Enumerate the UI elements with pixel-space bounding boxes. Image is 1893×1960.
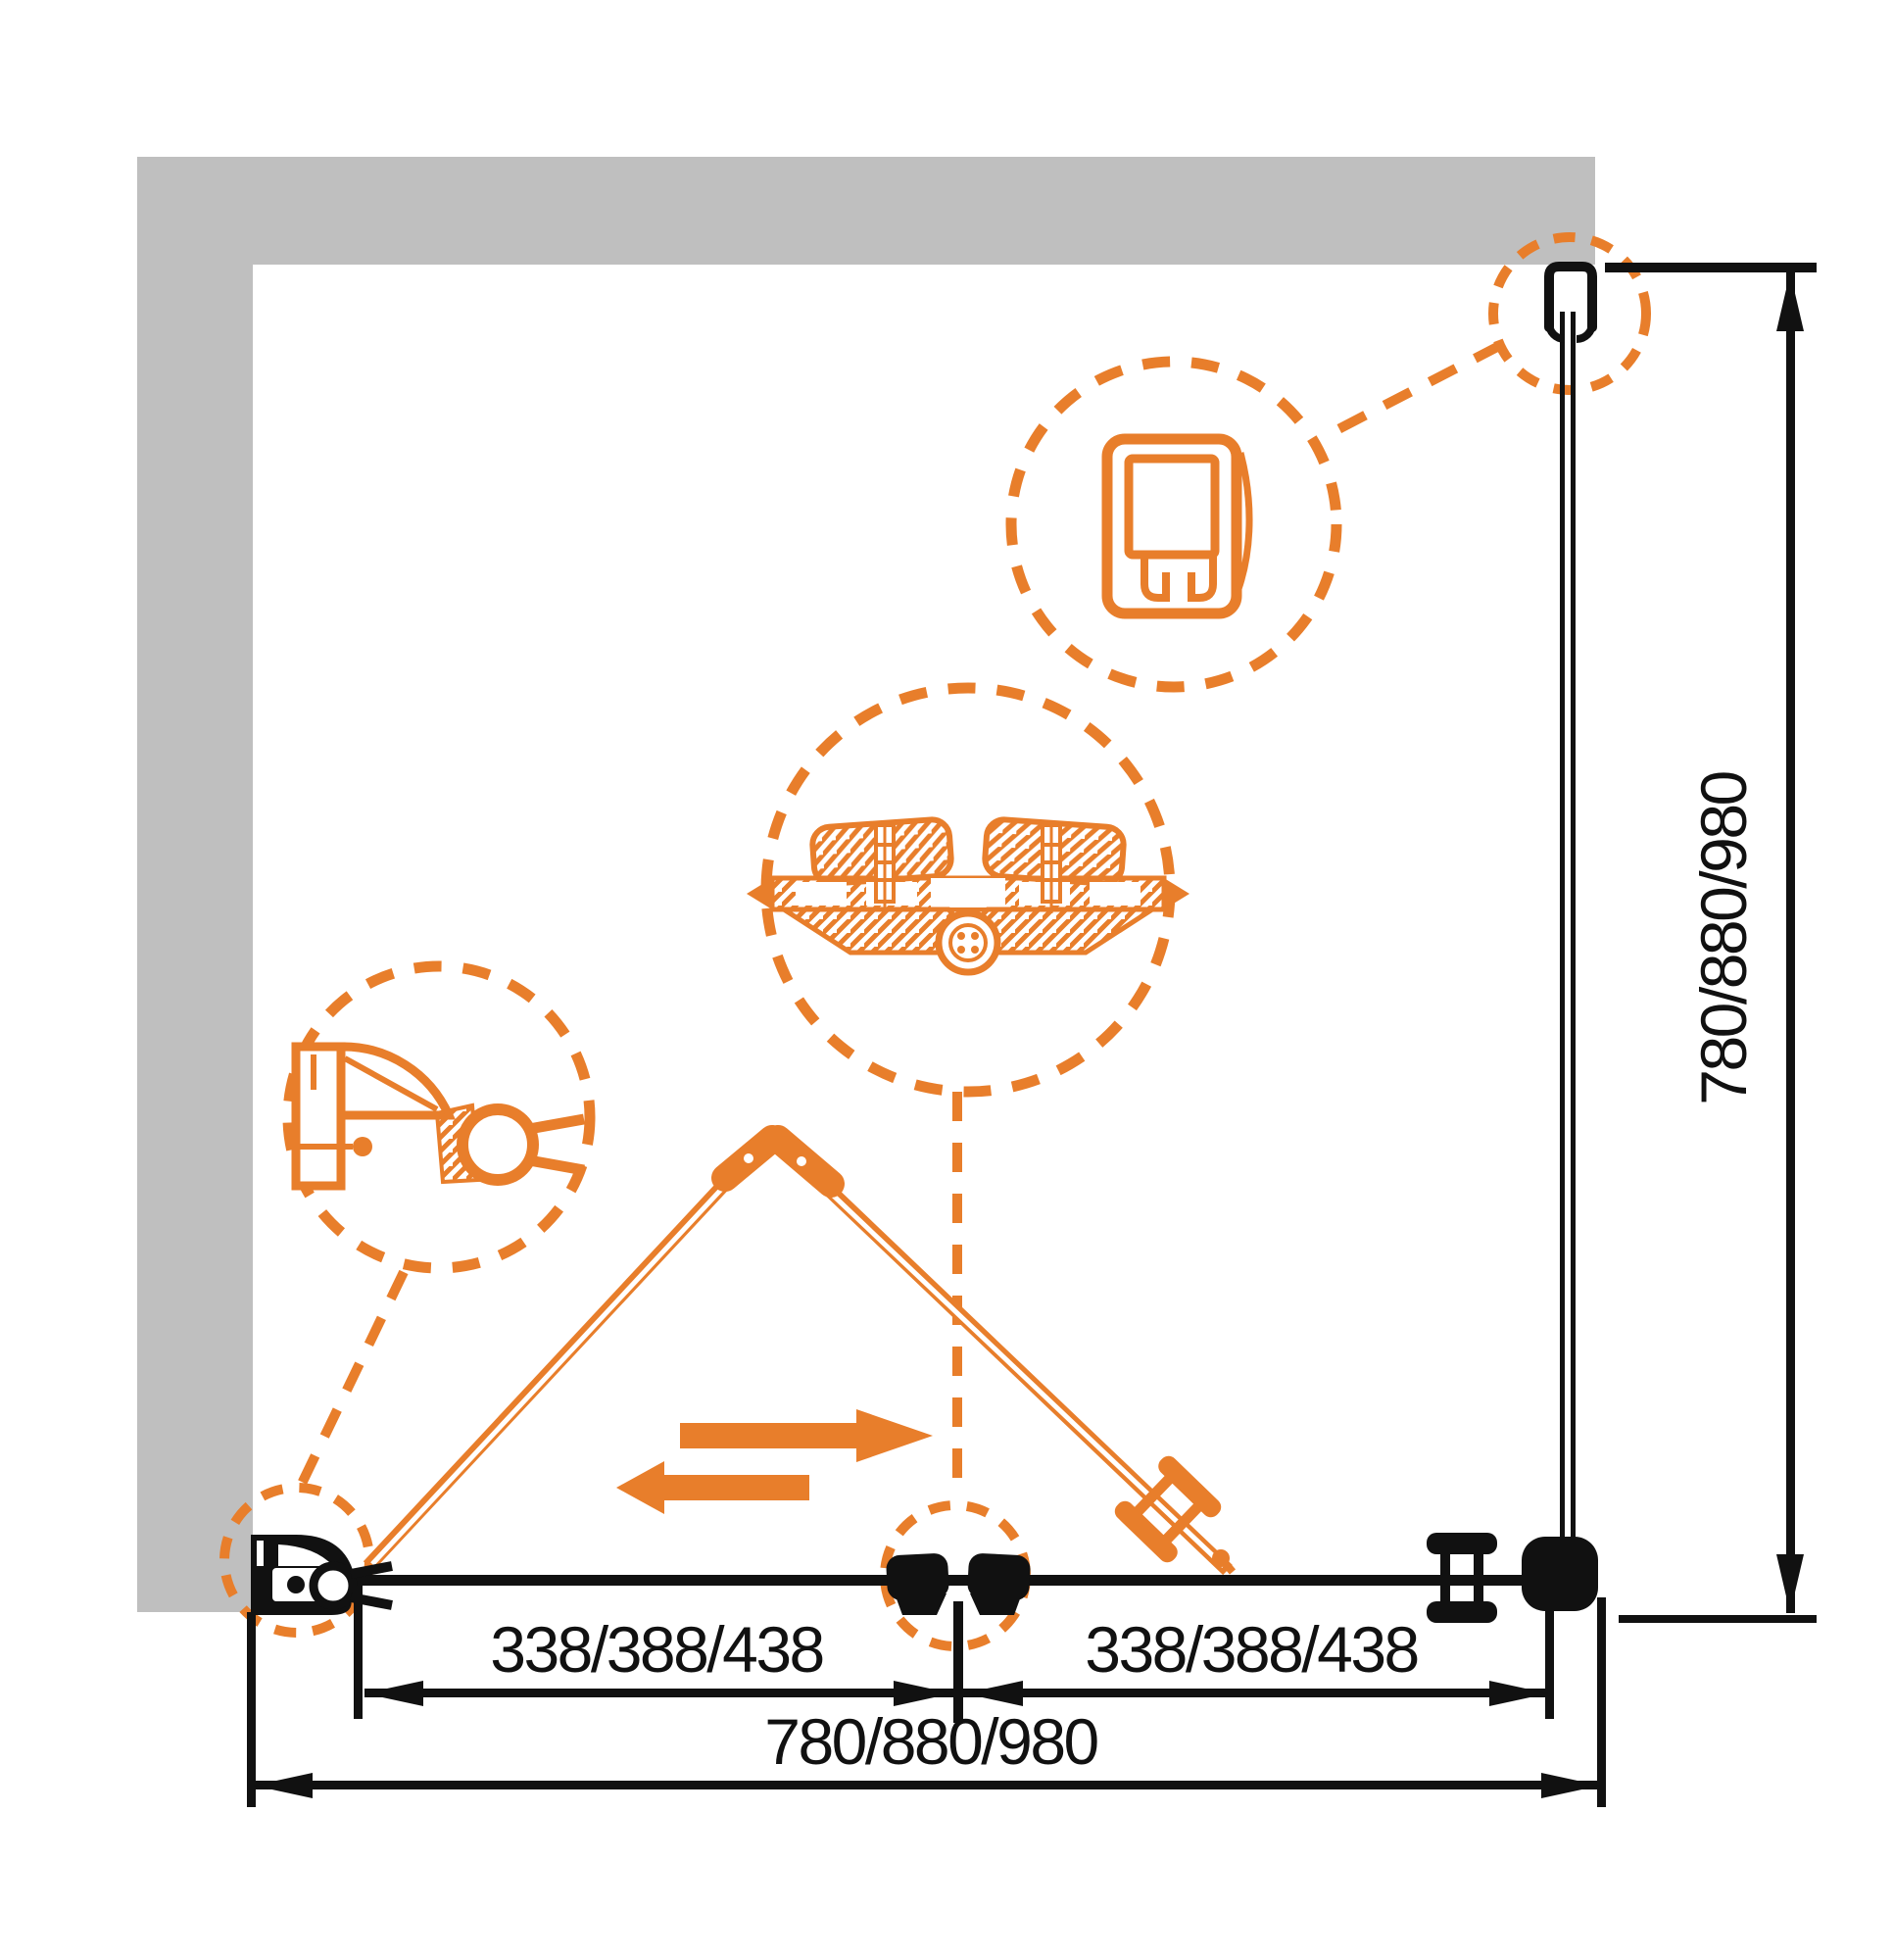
screw-icon — [876, 825, 894, 913]
arrow-right-icon — [680, 1409, 933, 1462]
dim-label-bottom-overall: 780/880/980 — [764, 1705, 1097, 1778]
screw-icon — [1043, 825, 1060, 913]
dim-line-segments — [364, 1689, 1548, 1697]
detail-circle-top-profile — [1011, 362, 1336, 687]
glass-panel-right — [1560, 312, 1576, 1543]
fold-hinge-mechanism-detail — [747, 818, 1189, 972]
wall-pivot-hinge-detail — [296, 1047, 584, 1186]
dim-label-right-height: 780/880/980 — [1687, 771, 1760, 1104]
dim-label-segment-left: 338/388/438 — [490, 1613, 823, 1686]
dim-line-bottom-overall — [254, 1781, 1600, 1789]
arrow-left-icon — [616, 1461, 809, 1514]
wall-profile-section-detail — [1107, 439, 1249, 613]
bifold-doors — [368, 1139, 1233, 1572]
slide-arrows — [616, 1409, 933, 1514]
ext-line-bottom-right — [1619, 1615, 1817, 1623]
pivot-icon — [939, 913, 997, 972]
dim-line-right-height — [1786, 272, 1795, 1613]
leader-top-right — [1335, 345, 1501, 431]
technical-drawing-page: 338/388/438 338/388/438 780/880/980 780/… — [0, 0, 1893, 1960]
dim-label-segment-right: 338/388/438 — [1085, 1613, 1418, 1686]
ext-line-top-right — [1605, 263, 1817, 272]
fold-hinge-apex — [725, 1139, 831, 1184]
leader-left — [299, 1272, 404, 1490]
corner-connector — [1522, 1537, 1598, 1611]
